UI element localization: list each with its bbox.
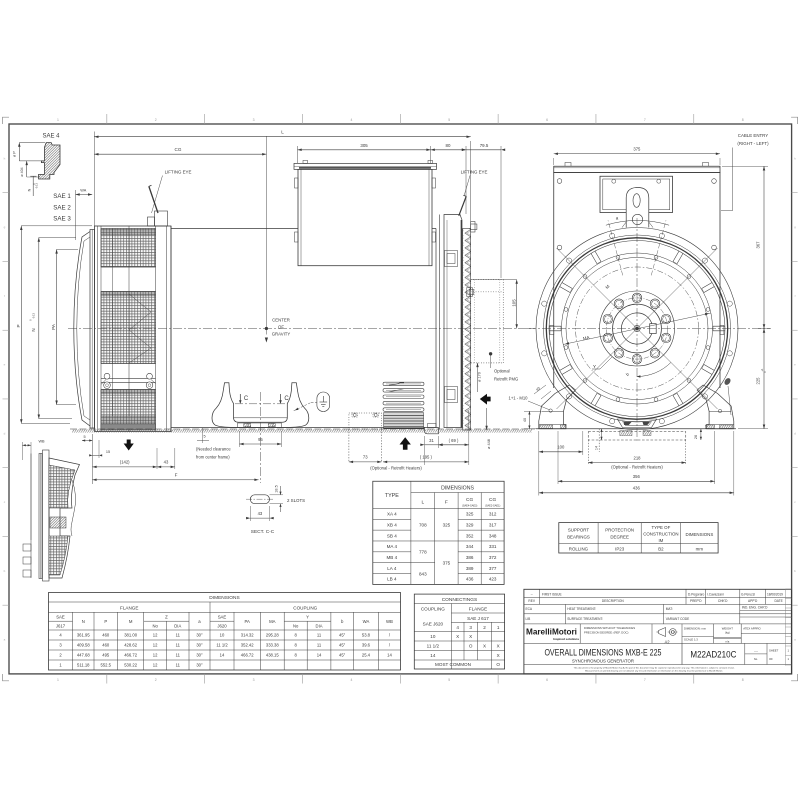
svg-text:8: 8	[742, 678, 744, 682]
svg-text:CG: CG	[466, 497, 473, 503]
svg-text:ø P: ø P	[13, 151, 17, 157]
svg-text:Optional: Optional	[494, 369, 510, 374]
svg-text:18/06/2019: 18/06/2019	[767, 592, 783, 596]
svg-text:4: 4	[350, 118, 352, 122]
svg-text:314.32: 314.32	[241, 633, 254, 638]
svg-text:PRECISION DEGREE: (REF. DOC): PRECISION DEGREE: (REF. DOC)	[584, 631, 629, 635]
svg-text:423: 423	[489, 577, 497, 582]
svg-text:708: 708	[419, 522, 427, 527]
svg-text:409.58: 409.58	[77, 643, 90, 648]
svg-text:VARIANT CODE: VARIANT CODE	[666, 617, 690, 621]
svg-text:FLANGE: FLANGE	[469, 607, 487, 612]
svg-text:MA 4: MA 4	[387, 544, 398, 549]
svg-text:CG: CG	[489, 497, 496, 503]
svg-text:30°: 30°	[196, 633, 203, 638]
svg-text:MB 4: MB 4	[386, 555, 397, 560]
svg-text:5: 5	[448, 118, 450, 122]
svg-text:-0.13: -0.13	[31, 312, 35, 318]
svg-text:MA: MA	[269, 619, 276, 624]
svg-text:SECT. C-C: SECT. C-C	[251, 529, 275, 535]
svg-text:375: 375	[443, 560, 451, 565]
svg-text:43: 43	[258, 511, 263, 516]
svg-text:MOST COMMON: MOST COMMON	[435, 662, 471, 667]
svg-text:(SAE4-SAE3): (SAE4-SAE3)	[462, 505, 477, 508]
svg-text:DIA: DIA	[174, 623, 181, 628]
svg-text:PA: PA	[51, 323, 56, 330]
svg-text:11 1/2: 11 1/2	[216, 643, 228, 648]
svg-text:3: 3	[253, 678, 255, 682]
svg-text:312: 312	[489, 512, 497, 517]
svg-text:466.72: 466.72	[241, 653, 254, 658]
svg-text:2 SLOTS: 2 SLOTS	[287, 498, 305, 503]
svg-text:12: 12	[153, 633, 158, 638]
svg-text:FLANGE: FLANGE	[120, 605, 138, 610]
svg-text:4: 4	[350, 678, 352, 682]
svg-text:SAE J 617: SAE J 617	[467, 616, 489, 621]
svg-text:CABLE ENTRY: CABLE ENTRY	[738, 133, 768, 138]
svg-text:466.72: 466.72	[124, 653, 137, 658]
svg-text:11: 11	[317, 643, 322, 648]
svg-text:DESCRIPTION: DESCRIPTION	[602, 599, 624, 603]
svg-text:TYPE OF: TYPE OF	[652, 525, 671, 530]
svg-text:11: 11	[176, 633, 181, 638]
svg-text:GRAVITY: GRAVITY	[272, 332, 291, 337]
svg-text:SAE 4: SAE 4	[42, 134, 60, 140]
svg-text:O: O	[496, 662, 500, 667]
svg-text:ROLLING: ROLLING	[569, 547, 589, 552]
svg-text:14: 14	[220, 653, 225, 658]
svg-text:Measurements on printed drawin: Measurements on printed drawing are not …	[585, 670, 723, 673]
svg-text:3: 3	[253, 118, 255, 122]
svg-text:ø 404: ø 404	[20, 167, 24, 176]
svg-text:REV: REV	[528, 599, 535, 603]
svg-text:CENTER: CENTER	[272, 318, 290, 323]
svg-text:5: 5	[203, 435, 205, 439]
svg-text:317: 317	[489, 522, 497, 527]
svg-text:372: 372	[489, 555, 497, 560]
svg-text:7: 7	[644, 678, 646, 682]
svg-text:CONNECTINGS: CONNECTINGS	[442, 597, 477, 603]
svg-text:SB 4: SB 4	[387, 533, 397, 538]
svg-text:OF: OF	[769, 657, 773, 661]
svg-text:225: 225	[756, 377, 761, 385]
svg-text:D.Pegoraro: D.Pegoraro	[688, 592, 705, 596]
svg-text:X: X	[497, 644, 500, 649]
svg-text:O: O	[469, 644, 473, 649]
svg-text:428.62: 428.62	[124, 643, 137, 648]
svg-text:18.5: 18.5	[275, 485, 279, 492]
svg-text:552.5: 552.5	[101, 663, 112, 668]
svg-text:325: 325	[443, 522, 451, 527]
svg-text:2: 2	[483, 625, 486, 630]
svg-text:25.4: 25.4	[362, 653, 371, 658]
svg-text:843: 843	[419, 571, 427, 576]
svg-text:14: 14	[387, 653, 392, 658]
svg-text:A2: A2	[664, 640, 670, 645]
svg-text:14: 14	[595, 446, 599, 450]
svg-text:45°: 45°	[339, 643, 346, 648]
svg-text:5: 5	[448, 678, 450, 682]
svg-text:80: 80	[446, 143, 451, 148]
svg-text:IM: IM	[658, 538, 663, 543]
svg-text:BEARINGS: BEARINGS	[567, 535, 590, 540]
svg-text:329: 329	[466, 522, 474, 527]
svg-text:XB 4: XB 4	[387, 522, 397, 527]
svg-text:----: ----	[754, 649, 758, 653]
svg-text:26: 26	[694, 435, 698, 439]
svg-text:11: 11	[176, 643, 181, 648]
svg-text:J620: J620	[217, 623, 227, 628]
svg-text:1+1 - M10: 1+1 - M10	[509, 396, 529, 401]
svg-text:SHEET: SHEET	[769, 649, 779, 653]
svg-text:DIA: DIA	[316, 623, 323, 628]
svg-text:333.38: 333.38	[266, 643, 279, 648]
svg-text:8: 8	[742, 118, 744, 122]
svg-text:SAE J620: SAE J620	[423, 622, 444, 627]
svg-text:M22AD210C: M22AD210C	[690, 649, 737, 659]
svg-text:DIMENSIONS: DIMENSIONS	[685, 532, 713, 537]
svg-text:PA: PA	[244, 619, 250, 624]
svg-text:45°: 45°	[339, 633, 346, 638]
svg-text:X: X	[483, 644, 486, 649]
svg-text:N: N	[82, 619, 85, 624]
svg-text:1: 1	[57, 118, 59, 122]
svg-text:30°: 30°	[196, 653, 203, 658]
svg-text:B2: B2	[658, 547, 664, 552]
svg-text:218: 218	[634, 455, 642, 460]
svg-text:3: 3	[469, 625, 472, 630]
svg-text:(kg): (kg)	[725, 631, 730, 635]
svg-text:4: 4	[456, 625, 459, 630]
svg-text:FIRST ISSUE: FIRST ISSUE	[542, 592, 562, 596]
svg-text:LA 4: LA 4	[387, 566, 397, 571]
svg-text:( 69 ): ( 69 )	[449, 438, 459, 443]
svg-text:C: C	[244, 396, 249, 402]
svg-text:WB: WB	[38, 439, 45, 443]
svg-text:No: No	[152, 623, 158, 628]
svg-text:6: 6	[546, 678, 548, 682]
svg-text:367: 367	[756, 241, 761, 249]
svg-text:mm: mm	[696, 547, 704, 552]
svg-text:OF: OF	[278, 325, 284, 330]
svg-text:PROTECTION: PROTECTION	[605, 528, 634, 533]
svg-text:N: N	[28, 188, 32, 191]
svg-text:2: 2	[155, 678, 157, 682]
svg-text:348: 348	[489, 533, 497, 538]
svg-text:460: 460	[102, 633, 110, 638]
svg-text:6: 6	[546, 118, 548, 122]
svg-text:43: 43	[164, 460, 169, 465]
svg-text:CONSTRUCTION: CONSTRUCTION	[643, 532, 678, 537]
svg-text:ATEX APPRO: ATEX APPRO	[743, 627, 761, 631]
svg-text:1: 1	[57, 678, 59, 682]
svg-text:30°: 30°	[196, 663, 203, 668]
svg-text:30°: 30°	[196, 643, 203, 648]
svg-text:SURFACE TREATMENT:: SURFACE TREATMENT:	[567, 617, 603, 621]
svg-text:79.5: 79.5	[480, 143, 489, 148]
svg-text:WA: WA	[363, 619, 370, 624]
svg-text:WA: WA	[80, 189, 86, 193]
svg-text:331: 331	[489, 544, 497, 549]
svg-text:TYPE: TYPE	[385, 493, 399, 499]
svg-text:7: 7	[644, 118, 646, 122]
svg-text:CG: CG	[175, 147, 182, 152]
svg-text:No.: No.	[754, 657, 758, 661]
svg-text:-0.13: -0.13	[35, 182, 39, 188]
svg-text:DIMENSIONS: DIMENSIONS	[441, 485, 474, 491]
svg-text:386: 386	[466, 555, 474, 560]
svg-text:ø 448: ø 448	[487, 439, 491, 449]
svg-text:2: 2	[155, 118, 157, 122]
svg-text:15: 15	[106, 450, 110, 454]
svg-text:1: 1	[497, 625, 500, 630]
svg-text:MAT:: MAT:	[666, 607, 673, 611]
svg-text:11: 11	[317, 633, 322, 638]
svg-text:SYNCHRONOUS GENERATOR: SYNCHRONOUS GENERATOR	[572, 658, 635, 663]
svg-text:14: 14	[430, 653, 436, 658]
svg-text:No: No	[293, 623, 299, 628]
svg-text:(SAE2-SAE1): (SAE2-SAE1)	[485, 505, 500, 508]
svg-text:352.42: 352.42	[241, 643, 254, 648]
svg-text:12: 12	[153, 643, 158, 648]
svg-text:530.22: 530.22	[124, 663, 137, 668]
svg-text:(Optional - Retrofit Heaters): (Optional - Retrofit Heaters)	[611, 464, 663, 469]
svg-text:447.68: 447.68	[77, 653, 90, 658]
svg-text:IP23: IP23	[615, 547, 625, 552]
svg-text:352: 352	[466, 533, 474, 538]
svg-text:G.Peruzzi: G.Peruzzi	[741, 592, 755, 596]
svg-text:X: X	[469, 634, 472, 639]
svg-text:LIFTING EYE: LIFTING EYE	[165, 170, 192, 175]
svg-text:from center frame): from center frame)	[196, 455, 230, 460]
svg-text:361.95: 361.95	[77, 633, 90, 638]
svg-text:53.8: 53.8	[362, 633, 371, 638]
svg-text:HEAT TREATMENT:: HEAT TREATMENT:	[567, 607, 596, 611]
svg-text:381.00: 381.00	[124, 633, 137, 638]
svg-text:31: 31	[429, 438, 434, 443]
svg-text:14: 14	[317, 653, 322, 658]
svg-text:10: 10	[430, 634, 436, 639]
svg-text:DIMENSIONS WITHOUT TOLERANCES: DIMENSIONS WITHOUT TOLERANCES	[584, 626, 635, 630]
svg-text:WB: WB	[386, 619, 393, 624]
svg-text:Z: Z	[165, 615, 168, 620]
svg-text:DIMENSIONS: DIMENSIONS	[209, 595, 239, 601]
svg-text:389: 389	[466, 566, 474, 571]
svg-text:X: X	[497, 653, 500, 658]
svg-text:356: 356	[633, 474, 641, 479]
svg-text:778: 778	[419, 550, 427, 555]
svg-text:11 1/2: 11 1/2	[427, 644, 440, 649]
svg-text:P: P	[16, 324, 21, 327]
svg-text:495: 495	[102, 653, 110, 658]
svg-text:ø 170: ø 170	[478, 372, 482, 382]
svg-text:P: P	[104, 619, 107, 624]
svg-text:MarelliMotori: MarelliMotori	[526, 628, 577, 637]
svg-text:SAE: SAE	[56, 615, 65, 620]
svg-text:(RIGHT - LEFT): (RIGHT - LEFT)	[737, 141, 769, 146]
svg-text:LIB: LIB	[526, 617, 531, 621]
svg-text:438.15: 438.15	[266, 653, 279, 658]
svg-text:11: 11	[176, 653, 181, 658]
svg-text:a: a	[616, 216, 619, 221]
svg-text:344: 344	[466, 544, 474, 549]
svg-text:M: M	[129, 619, 133, 624]
svg-text:I.Cavazzani: I.Cavazzani	[707, 592, 724, 596]
svg-text:OVERALL DIMENSIONS MXB-E 225: OVERALL DIMENSIONS MXB-E 225	[544, 647, 661, 657]
svg-text:ECA: ECA	[526, 607, 533, 611]
svg-text:305: 305	[360, 143, 368, 148]
svg-text:SAE 3: SAE 3	[53, 216, 71, 223]
svg-text:COUPLING: COUPLING	[421, 607, 445, 612]
svg-text:511.18: 511.18	[77, 663, 90, 668]
svg-text:325: 325	[466, 512, 474, 517]
svg-text:J617: J617	[56, 623, 66, 628]
svg-text:L: L	[281, 130, 284, 135]
svg-text:F: F	[445, 500, 448, 506]
svg-text:N: N	[31, 328, 36, 331]
svg-text:436: 436	[466, 577, 474, 582]
svg-text:This document is the property: This document is the property of Marelli…	[573, 666, 734, 669]
svg-text:F: F	[175, 473, 178, 478]
svg-text:(Optional - Retrofit Heaters): (Optional - Retrofit Heaters)	[370, 466, 422, 471]
svg-text:L: L	[421, 500, 424, 506]
svg-text:95: 95	[258, 437, 263, 442]
svg-text:DEGREE: DEGREE	[610, 535, 629, 540]
svg-text:SAE 2: SAE 2	[53, 205, 71, 212]
svg-text:X: X	[456, 634, 459, 639]
svg-text:APP'D: APP'D	[748, 599, 758, 603]
svg-text:LB 4: LB 4	[387, 577, 397, 582]
svg-text:12: 12	[153, 663, 158, 668]
svg-text:DIMENSION: mm: DIMENSION: mm	[684, 627, 707, 631]
svg-text:Inspired solutions: Inspired solutions	[553, 637, 579, 641]
svg-text:(Needed clearance: (Needed clearance	[196, 447, 231, 452]
svg-text:39.6: 39.6	[362, 643, 371, 648]
svg-text:436: 436	[633, 486, 641, 491]
svg-text:C: C	[284, 396, 289, 402]
svg-text:SUPPORT: SUPPORT	[568, 528, 589, 533]
svg-text:12: 12	[153, 653, 158, 658]
svg-text:IND. ENG. CHK'D: IND. ENG. CHK'D	[742, 605, 768, 609]
svg-text:377: 377	[489, 566, 497, 571]
svg-text:( 195 ): ( 195 )	[420, 455, 433, 460]
svg-text:100: 100	[557, 445, 565, 450]
svg-text:Retrofit PMG: Retrofit PMG	[494, 377, 518, 382]
svg-text:XA 4: XA 4	[387, 512, 397, 517]
svg-text:460: 460	[102, 643, 110, 648]
svg-text:SAE: SAE	[218, 615, 227, 620]
svg-text:45°: 45°	[339, 653, 346, 658]
svg-text:COUPLING: COUPLING	[293, 605, 317, 610]
svg-text:10: 10	[220, 633, 225, 638]
svg-text:--: --	[531, 592, 533, 596]
svg-text:DATE: DATE	[774, 599, 782, 603]
svg-text:105: 105	[511, 299, 516, 307]
svg-text:CHK'D: CHK'D	[718, 599, 728, 603]
svg-text:SCALE 1:3: SCALE 1:3	[684, 638, 698, 642]
svg-text:LIFTING EYE: LIFTING EYE	[461, 170, 488, 175]
svg-text:PREP'D: PREP'D	[690, 599, 702, 603]
svg-text:375: 375	[633, 147, 641, 152]
svg-text:5: 5	[83, 435, 85, 439]
svg-text:11: 11	[176, 663, 181, 668]
svg-text:Y: Y	[306, 615, 309, 620]
svg-text:SAE 1: SAE 1	[53, 193, 71, 200]
svg-text:(142): (142)	[120, 460, 130, 465]
svg-text:n/a: n/a	[725, 640, 729, 644]
svg-text:295.28: 295.28	[266, 633, 279, 638]
svg-text:73: 73	[363, 455, 368, 460]
svg-text:40: 40	[523, 418, 527, 422]
